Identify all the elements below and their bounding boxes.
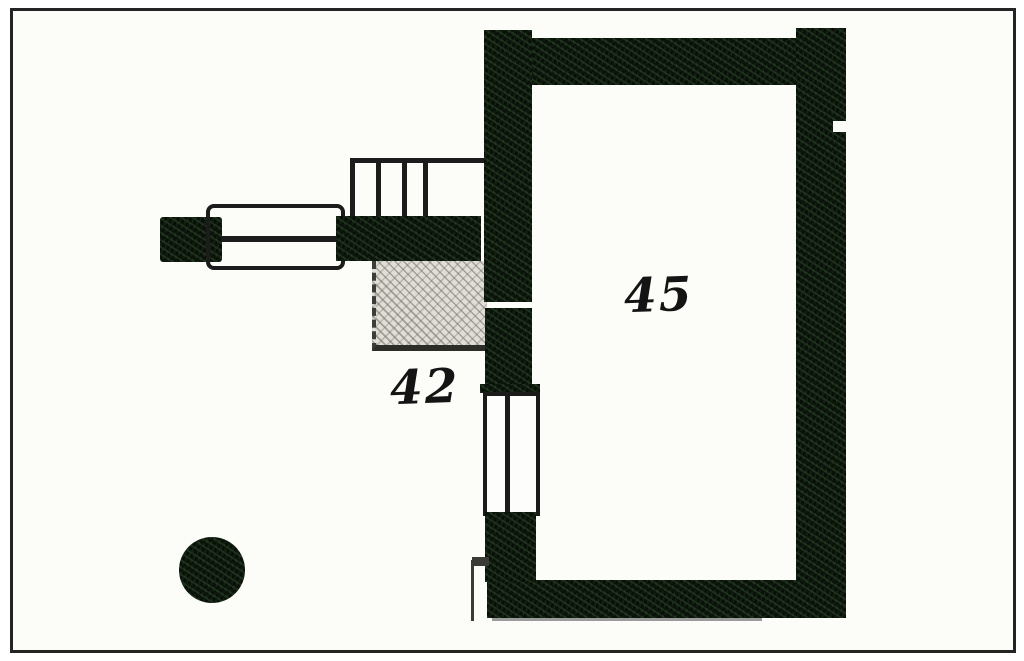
west-wall-face-cap <box>472 557 489 566</box>
staircase-step-line <box>423 161 428 216</box>
room-42-hatched-block <box>372 261 487 351</box>
column-dot <box>179 537 245 603</box>
corridor-south-wall <box>336 216 481 261</box>
room-42-label: 42 <box>389 363 460 412</box>
room-45-south-wall <box>487 580 846 618</box>
staircase-step-line <box>376 161 381 216</box>
plan-canvas: 42 45 <box>0 0 1024 661</box>
room-45-label: 45 <box>623 271 694 320</box>
west-wall-face-line <box>471 560 474 621</box>
room-45-west-wall-upper <box>484 30 532 302</box>
room-45-west-wall-lower <box>485 512 536 582</box>
room-45-east-wall <box>796 28 846 618</box>
room-45-doorway-threshold <box>483 392 540 516</box>
room-45-west-wall-mid <box>485 308 532 391</box>
south-wall-shadow-line <box>492 618 762 621</box>
west-doorway-center-line <box>221 236 339 242</box>
staircase-top-edge <box>350 158 487 163</box>
staircase-step-line <box>402 161 407 216</box>
east-wall-seam-notch <box>833 121 847 132</box>
staircase-step-line <box>350 161 355 216</box>
doorway-center-line <box>505 396 510 512</box>
room-45-north-wall <box>484 38 846 85</box>
